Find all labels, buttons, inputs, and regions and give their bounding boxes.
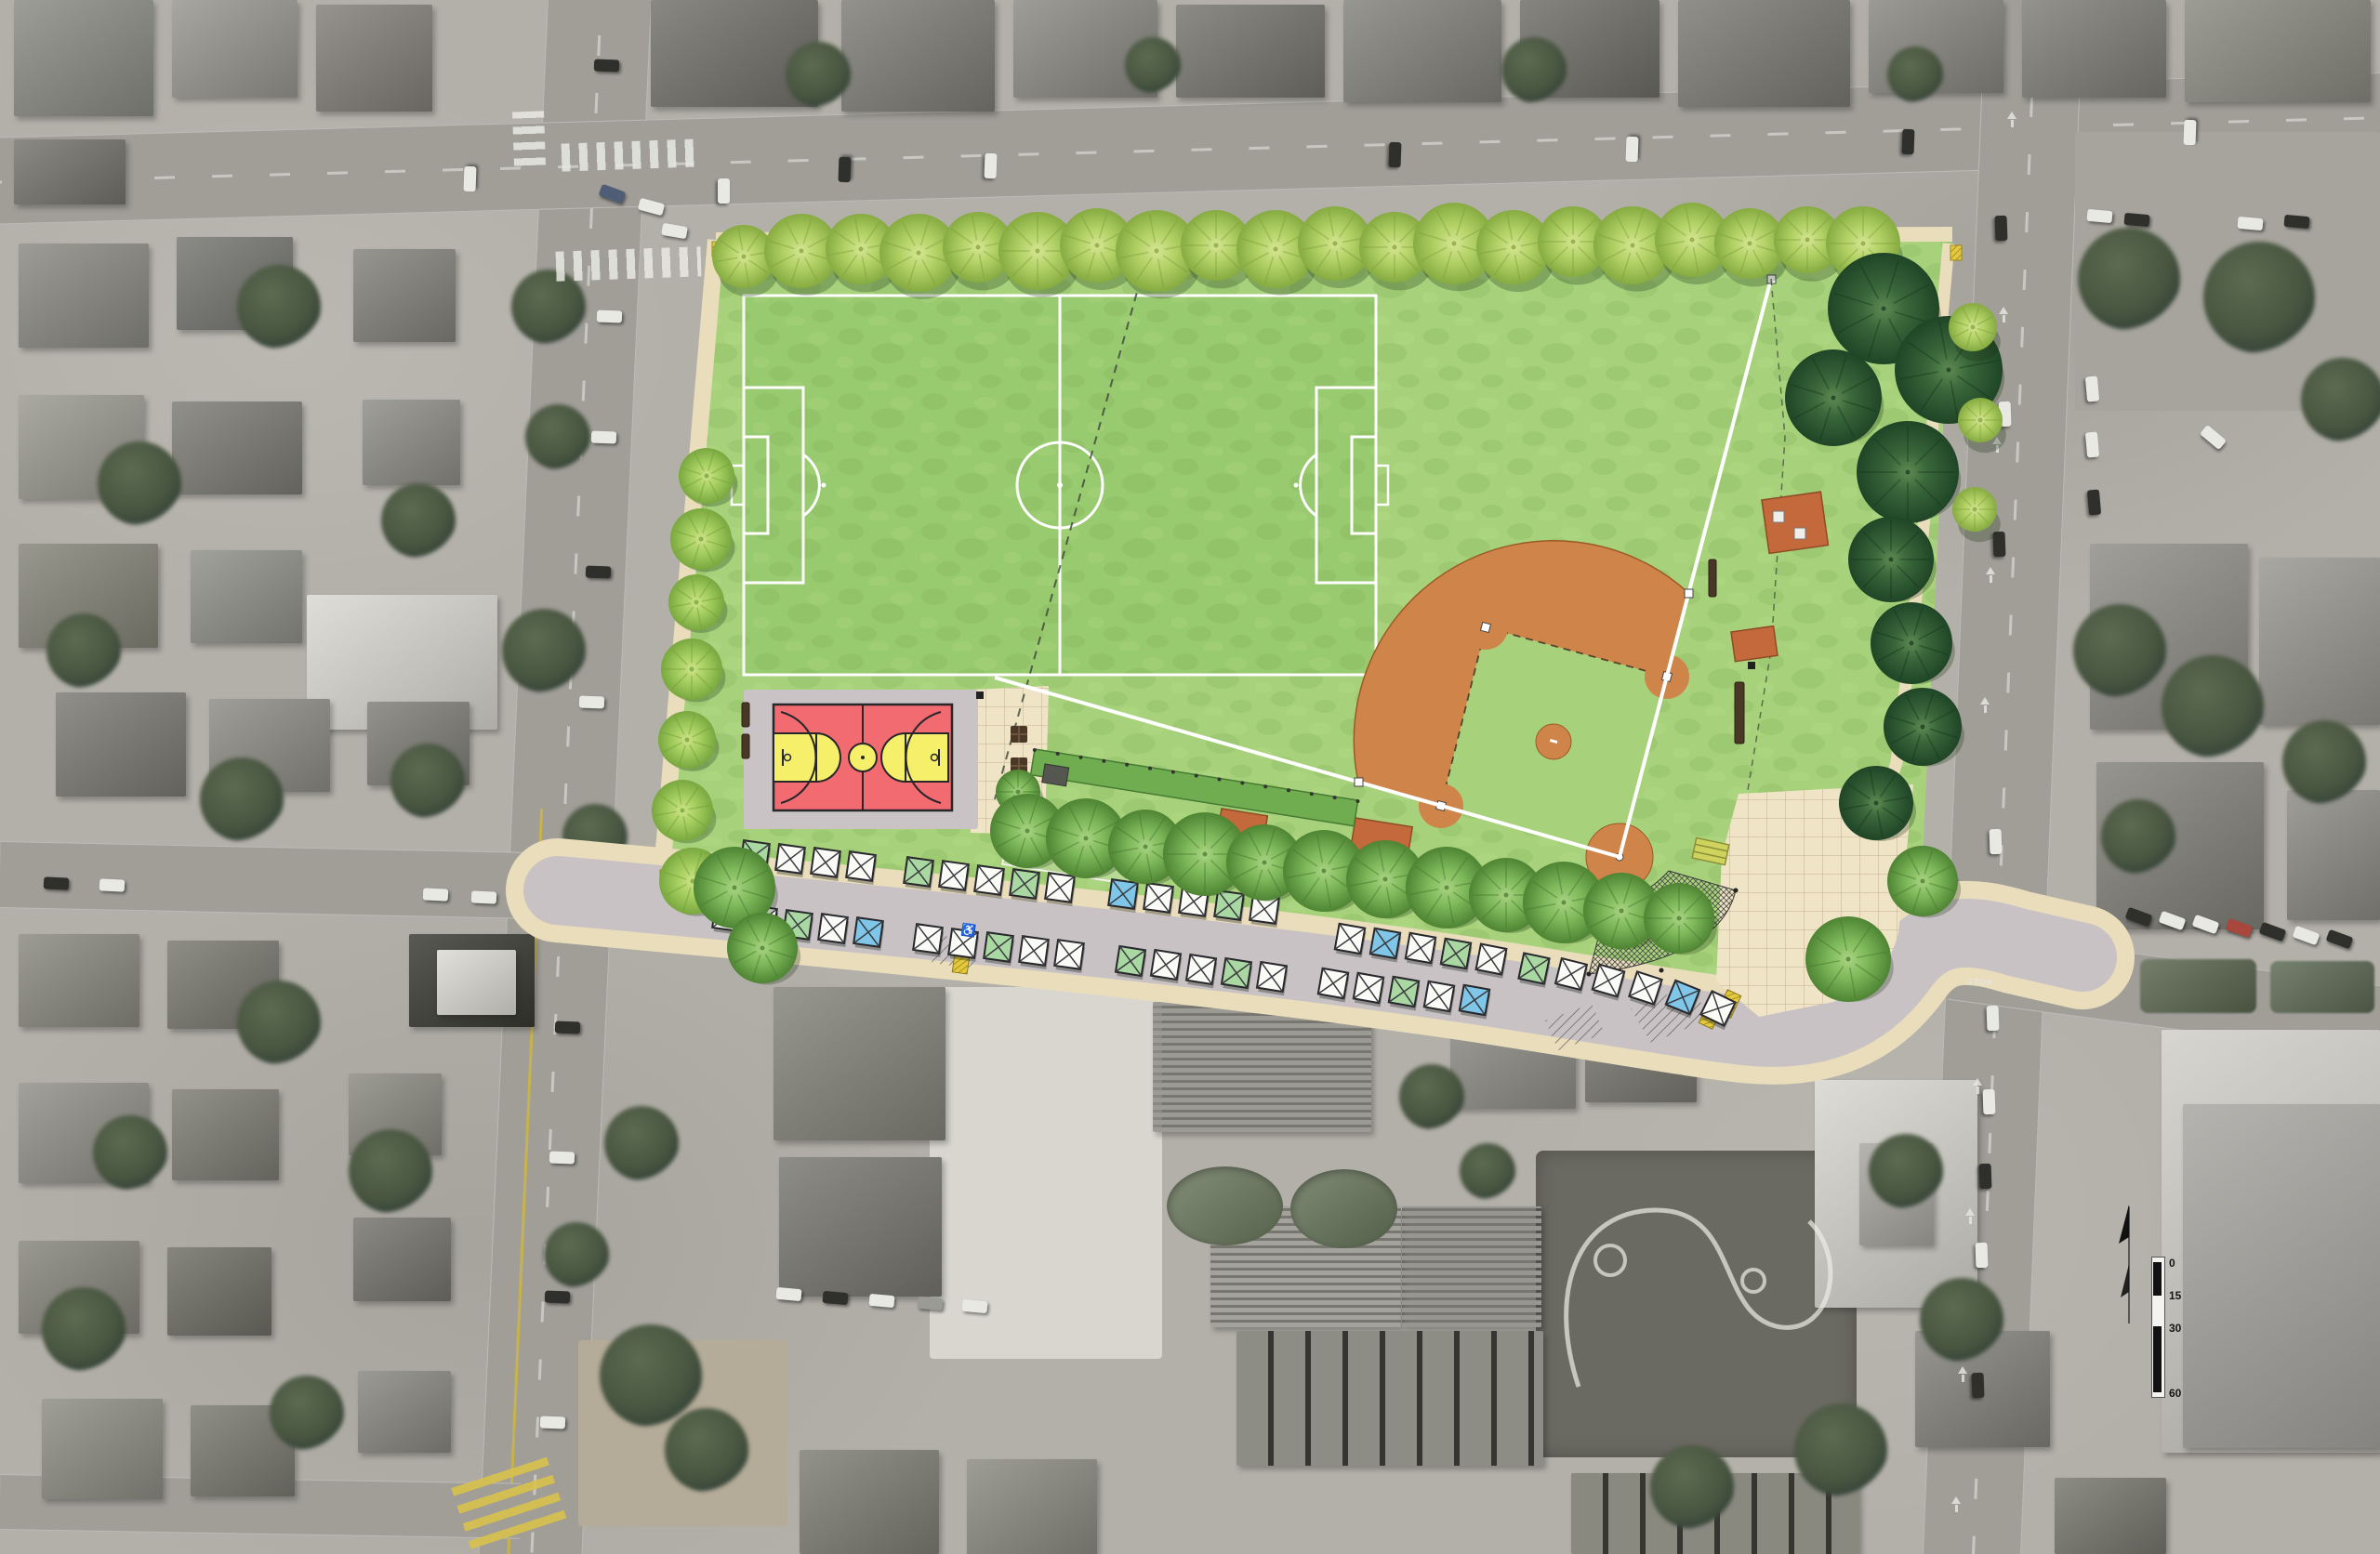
- scale-segment: [2153, 1262, 2162, 1295]
- parking-stall: [1440, 939, 1473, 973]
- parking-stall: [1185, 955, 1218, 988]
- bench: [742, 703, 749, 727]
- parking-stall: [1045, 873, 1077, 906]
- parking-stall: [1334, 924, 1367, 958]
- picnic-table: [1794, 528, 1805, 539]
- parking-stall: [1405, 933, 1437, 968]
- parking-stall: [1459, 985, 1491, 1020]
- parking-stall: [818, 914, 850, 947]
- terracotta-plaza: [1731, 626, 1778, 662]
- parking-stall: [904, 857, 935, 890]
- tree: [1958, 398, 2006, 453]
- pine-tree: [1857, 421, 1961, 523]
- scale-label-60: 60: [2169, 1387, 2181, 1400]
- parking-stall: [1115, 946, 1147, 980]
- stop-pavement-marking: STOP: [1967, 977, 1994, 987]
- parking-stall: [913, 924, 945, 957]
- playground-loop: [1567, 1210, 1831, 1387]
- terracotta-plaza: [1762, 492, 1828, 553]
- aerial-site-plan: ♿ 0 15 30 60 STOP: [0, 0, 2380, 1554]
- parking-stall: [1144, 883, 1175, 916]
- picnic-table: [1773, 511, 1784, 522]
- tree: [1952, 487, 2001, 542]
- parking-stall: [811, 848, 842, 881]
- parking-stall: [1388, 977, 1421, 1011]
- curb-ramp: [1950, 245, 1962, 260]
- trash-can: [976, 691, 984, 699]
- pine-tree: [1871, 602, 1955, 684]
- parking-stall: [1369, 928, 1402, 963]
- picnic-table: [1011, 726, 1027, 743]
- storage-shed: [1042, 764, 1069, 786]
- parking-stall: [1256, 962, 1289, 995]
- parking-stall: [1353, 973, 1385, 1007]
- parking-stall: [1150, 950, 1183, 983]
- accessible-parking-icon: ♿: [960, 922, 977, 938]
- scale-label-15: 15: [2169, 1289, 2181, 1302]
- scale-bar: 0 15 30 60: [2144, 1242, 2198, 1411]
- bench: [1735, 682, 1744, 744]
- parking-stall: [853, 917, 885, 951]
- parking-stall: [1019, 936, 1051, 969]
- parking-stall: [1108, 879, 1140, 913]
- bench: [742, 734, 749, 758]
- trash-can: [1748, 662, 1755, 669]
- parking-stall: [984, 932, 1015, 966]
- north-arrow: [2119, 1205, 2129, 1324]
- parking-stall: [1221, 958, 1253, 992]
- parking-stall: [1423, 981, 1456, 1016]
- parking-stall: [846, 851, 878, 885]
- park-plan: ♿: [0, 0, 2380, 1554]
- parking-stall: [1054, 940, 1086, 973]
- scale-segment: [2153, 1295, 2162, 1327]
- parking-stall: [939, 861, 971, 894]
- scale-segment: [2153, 1327, 2162, 1392]
- parking-stall: [775, 844, 807, 877]
- parking-stall: [1010, 869, 1041, 902]
- pine-tree: [1884, 688, 1964, 767]
- parking-stall: [1317, 968, 1350, 1003]
- parking-stall: [1214, 890, 1246, 924]
- bench: [1709, 560, 1716, 597]
- basketball-court: [744, 690, 978, 829]
- scale-label-0: 0: [2169, 1257, 2175, 1270]
- parking-stall: [974, 865, 1006, 899]
- scale-label-30: 30: [2169, 1322, 2181, 1335]
- parking-stall: [1475, 944, 1509, 979]
